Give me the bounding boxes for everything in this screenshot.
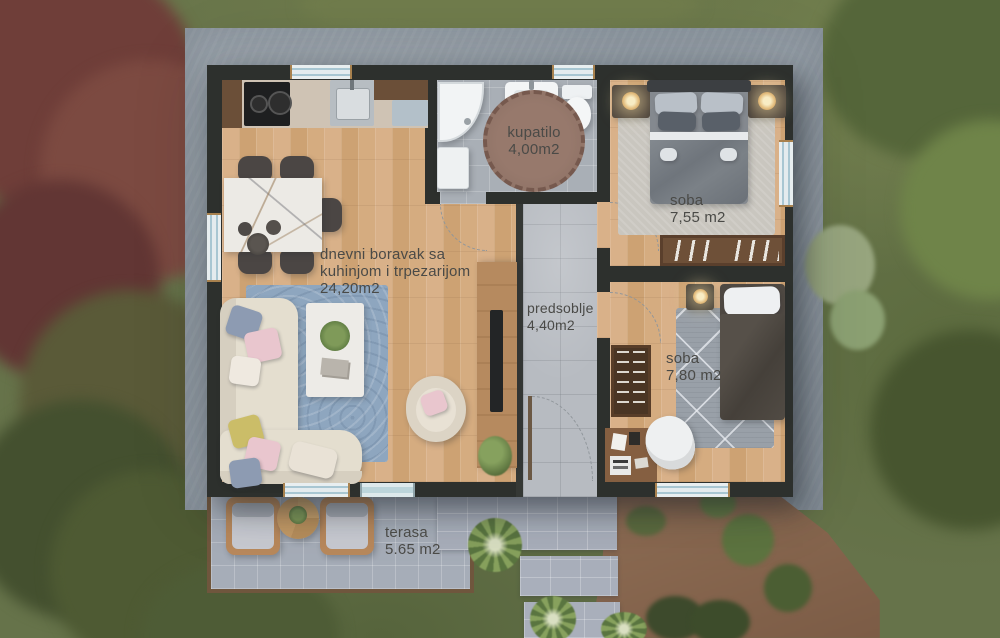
bathroom-window (552, 65, 595, 79)
bed2-duvet (720, 314, 785, 420)
hallway-name: predsoblje (527, 300, 594, 317)
terrace-label: terasa 5.65 m2 (385, 524, 441, 558)
printer-slot (613, 466, 628, 469)
desk-notes (634, 457, 648, 469)
shower-drain (464, 118, 471, 125)
agave-plant (530, 596, 576, 638)
desk-printer (610, 456, 631, 475)
bedroom1-dresser (660, 235, 785, 266)
dresser-slats (667, 240, 717, 261)
sofa-pillow-blue (228, 457, 263, 489)
dresser-slats (727, 240, 779, 261)
bedside-lamp (758, 92, 776, 110)
terrace-chair-backrest (326, 503, 368, 517)
bedroom1-name: soba (670, 192, 726, 209)
washing-machine (437, 147, 469, 189)
bathroom-area: 4,00m2 (507, 141, 560, 158)
bedroom2-area: 7,80 m2 (666, 367, 722, 384)
coffee-table-books (320, 358, 349, 378)
terrace-chair (226, 497, 280, 555)
wardrobe-hangers (617, 351, 629, 411)
burner-large (268, 91, 292, 115)
bathroom-name: kupatilo (507, 124, 560, 141)
walkway-slab (520, 556, 618, 596)
terrace-name: terasa (385, 524, 441, 541)
counter-wood-left (222, 80, 242, 128)
living-label-line1: dnevni boravak sa (320, 246, 490, 263)
terrace-table (277, 497, 319, 539)
hallway-divider-wall (516, 204, 523, 497)
dining-chair (238, 156, 272, 180)
terrace-table-plant (289, 506, 307, 524)
sage-bush (830, 290, 885, 350)
wardrobe-hangers (633, 351, 645, 411)
bedroom2-window (655, 483, 730, 497)
table-plate (238, 222, 252, 236)
bed-pillow-white (724, 286, 781, 316)
living-bottom-window (283, 483, 350, 497)
bed-pillow-dark (702, 111, 741, 131)
cooktop (244, 82, 290, 126)
shrub-right-dark (870, 330, 1000, 530)
hallway-area: 4,40m2 (527, 317, 594, 334)
terrace-chair (320, 497, 374, 555)
bed-pillow-dark (658, 111, 697, 131)
terrace-area: 5.65 m2 (385, 541, 441, 558)
terrace-chair-backrest (232, 503, 274, 517)
wardrobe (611, 345, 651, 417)
walkway-slab (437, 497, 617, 550)
bedroom1-door-gap (597, 202, 610, 248)
double-bed (650, 82, 748, 204)
dining-table (224, 178, 322, 252)
living-label-area: 24,20m2 (320, 280, 490, 297)
house: kupatilo 4,00m2 (207, 65, 793, 497)
grass-tuft (626, 506, 666, 536)
counter-wood-right (374, 80, 428, 100)
accent-pillow (660, 148, 677, 161)
bedroom2-door-gap (597, 292, 610, 338)
coffee-table-plant (320, 321, 350, 351)
sofa-pillow-white (228, 355, 262, 387)
bedroom1-area: 7,55 m2 (670, 209, 726, 226)
desk-paper (611, 433, 627, 451)
bathroom-label: kupatilo 4,00m2 (507, 124, 560, 158)
kitchen-faucet (350, 80, 354, 90)
living-label-line2: kuhinjom i trpezarijom (320, 263, 490, 280)
printer-slot (613, 460, 628, 463)
burner-small (250, 95, 268, 113)
dining-chair (280, 250, 314, 274)
bedside-lamp (693, 289, 708, 304)
kitchen-sink-basin (336, 88, 370, 120)
living-side-window (207, 213, 221, 282)
agave-plant (601, 612, 647, 638)
bedside-lamp (622, 92, 640, 110)
kitchen-sink-unit (330, 80, 374, 126)
green-bush (722, 514, 774, 566)
terrace-glass-door (360, 483, 415, 497)
bathroom-door-gap (440, 192, 486, 204)
hall-bedroom-wall (597, 80, 610, 482)
accent-pillow (720, 148, 737, 161)
kitchen-appliance (392, 100, 428, 126)
living-room-label: dnevni boravak sa kuhinjom i trpezarijom… (320, 246, 490, 297)
table-plate (266, 220, 281, 235)
bathroom-rug: kupatilo 4,00m2 (483, 90, 585, 192)
console-plant (478, 436, 512, 476)
single-bed (720, 284, 785, 420)
floorplan-render: kupatilo 4,00m2 (0, 0, 1000, 638)
hallway-label: predsoblje 4,40m2 (527, 300, 594, 334)
sink-faucet (529, 80, 534, 90)
bedroom1-label: soba 7,55 m2 (670, 192, 726, 226)
kitchen-window (290, 65, 352, 79)
bed-headboard (647, 80, 751, 92)
bedrooms-divider-wall (610, 266, 785, 282)
dining-chair (280, 156, 314, 180)
bedroom2-name: soba (666, 350, 722, 367)
bedroom1-window (779, 140, 793, 207)
table-bowl (247, 233, 269, 255)
coffee-table (306, 303, 364, 397)
desk-laptop (629, 432, 640, 445)
green-bush (764, 564, 812, 612)
agave-plant (468, 518, 522, 572)
kitchen-counter (222, 80, 428, 128)
armchair (406, 376, 466, 442)
tv-screen (490, 310, 503, 412)
bedroom2-label: soba 7,80 m2 (666, 350, 722, 384)
green-bush (690, 600, 750, 638)
